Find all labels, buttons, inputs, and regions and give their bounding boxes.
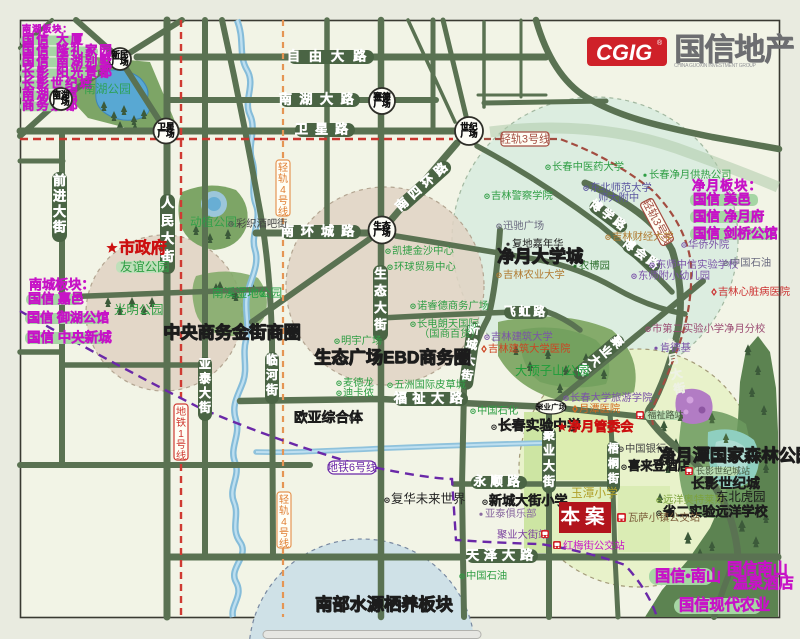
svg-text:东北虎园: 东北虎园 bbox=[716, 490, 766, 504]
svg-text:国信现代农业: 国信现代农业 bbox=[679, 596, 770, 614]
svg-text:临: 临 bbox=[266, 353, 278, 367]
svg-text:轨: 轨 bbox=[278, 172, 288, 185]
svg-text:4: 4 bbox=[281, 517, 287, 528]
svg-text:月: 月 bbox=[665, 352, 680, 367]
svg-text:卫星路: 卫星路 bbox=[295, 120, 355, 136]
svg-text:街: 街 bbox=[542, 475, 555, 489]
svg-text:国信 净月府: 国信 净月府 bbox=[693, 208, 765, 224]
svg-text:吉林财经大学: 吉林财经大学 bbox=[612, 230, 674, 243]
svg-text:广场: 广场 bbox=[460, 128, 478, 139]
svg-text:人: 人 bbox=[161, 195, 175, 210]
svg-text:师大附中: 师大附中 bbox=[598, 191, 639, 204]
svg-text:梧: 梧 bbox=[608, 441, 619, 455]
svg-text:大: 大 bbox=[374, 300, 387, 315]
svg-text:净月管委会: 净月管委会 bbox=[568, 418, 634, 434]
svg-text:CHINA GUOXIN INVESTMENT GROUP: CHINA GUOXIN INVESTMENT GROUP bbox=[674, 63, 757, 69]
svg-text:环球贸易中心: 环球贸易中心 bbox=[394, 260, 456, 273]
svg-text:吉林建筑大学: 吉林建筑大学 bbox=[491, 330, 553, 343]
svg-text:铁: 铁 bbox=[176, 416, 186, 429]
svg-text:业: 业 bbox=[543, 444, 555, 458]
svg-text:生: 生 bbox=[374, 266, 387, 281]
svg-text:广场: 广场 bbox=[111, 56, 129, 67]
svg-text:长春净月供热公司: 长春净月供热公司 bbox=[649, 168, 731, 181]
svg-text:五洲国际皮草城: 五洲国际皮草城 bbox=[394, 378, 466, 391]
svg-text:新城大街小学: 新城大街小学 bbox=[489, 492, 568, 508]
svg-text:号: 号 bbox=[176, 439, 186, 451]
svg-text:华侨外院: 华侨外院 bbox=[688, 238, 729, 251]
svg-text:大顶子山公园: 大顶子山公园 bbox=[515, 364, 589, 378]
svg-text:复华未来世界: 复华未来世界 bbox=[391, 491, 465, 506]
svg-text:南部水源栖养板块: 南部水源栖养板块 bbox=[316, 595, 454, 615]
svg-text:大: 大 bbox=[53, 203, 66, 219]
svg-text:广场: 广场 bbox=[157, 128, 175, 139]
svg-text:本案: 本案 bbox=[560, 505, 609, 528]
svg-text:街: 街 bbox=[198, 401, 211, 415]
svg-text:彩织酒吧街: 彩织酒吧街 bbox=[236, 217, 287, 230]
svg-text:市第二实验小学净月分校: 市第二实验小学净月分校 bbox=[652, 322, 765, 335]
svg-text:桐: 桐 bbox=[608, 456, 619, 470]
svg-text:国信 中央新城: 国信 中央新城 bbox=[27, 329, 112, 345]
svg-text:号: 号 bbox=[278, 195, 288, 207]
svg-text:月潭医院: 月潭医院 bbox=[579, 402, 620, 415]
svg-text:中国石油: 中国石油 bbox=[466, 569, 507, 582]
svg-text:国信 剑桥公馆: 国信 剑桥公馆 bbox=[693, 225, 778, 241]
svg-text:自由大路: 自由大路 bbox=[287, 47, 375, 63]
svg-text:凯捷金沙中心: 凯捷金沙中心 bbox=[392, 244, 454, 257]
svg-text:南环城路: 南环城路 bbox=[281, 222, 361, 238]
svg-text:国信 御湖公馆: 国信 御湖公馆 bbox=[27, 309, 109, 325]
svg-text:态: 态 bbox=[374, 283, 387, 298]
svg-text:线: 线 bbox=[278, 205, 288, 218]
svg-text:光明公园: 光明公园 bbox=[114, 303, 164, 317]
svg-text:吉林心脏病医院: 吉林心脏病医院 bbox=[718, 285, 790, 298]
svg-text:轻: 轻 bbox=[278, 161, 288, 174]
svg-text:友谊公园: 友谊公园 bbox=[120, 259, 170, 274]
svg-text:瓦萨小镇公交站: 瓦萨小镇公交站 bbox=[628, 511, 700, 524]
svg-text:长春大学旅游学院: 长春大学旅游学院 bbox=[570, 391, 652, 404]
svg-text:南湖大路: 南湖大路 bbox=[279, 90, 361, 106]
svg-text:玉潭小学: 玉潭小学 bbox=[571, 486, 618, 500]
svg-text:东师附小幼儿园: 东师附小幼儿园 bbox=[638, 269, 710, 282]
svg-text:净月潭国家森林公园: 净月潭国家森林公园 bbox=[659, 446, 800, 466]
svg-text:前: 前 bbox=[53, 172, 66, 188]
svg-text:大: 大 bbox=[199, 386, 211, 400]
svg-text:诺睿德商务广场: 诺睿德商务广场 bbox=[417, 299, 489, 312]
svg-text:线: 线 bbox=[279, 537, 289, 550]
svg-text:广场: 广场 bbox=[373, 227, 391, 238]
svg-text:天泽大路: 天泽大路 bbox=[466, 546, 538, 562]
svg-text:净月大学城: 净月大学城 bbox=[498, 247, 585, 267]
svg-text:河: 河 bbox=[266, 368, 278, 382]
svg-text:国信 美邑: 国信 美邑 bbox=[693, 191, 751, 207]
svg-text:1: 1 bbox=[178, 429, 184, 440]
svg-text:迪卡侬: 迪卡侬 bbox=[343, 386, 375, 399]
svg-text:福祉路站: 福祉路站 bbox=[648, 409, 684, 420]
svg-text:红梅街公交站: 红梅街公交站 bbox=[563, 539, 625, 552]
svg-text:明宇广场: 明宇广场 bbox=[341, 334, 382, 347]
svg-text:广场: 广场 bbox=[373, 98, 391, 109]
svg-text:轻: 轻 bbox=[279, 493, 289, 506]
svg-text:轻轨3号线: 轻轨3号线 bbox=[500, 132, 550, 146]
svg-text:街: 街 bbox=[52, 219, 66, 235]
svg-text:地: 地 bbox=[176, 405, 186, 418]
svg-text:民: 民 bbox=[161, 213, 174, 228]
svg-text:4: 4 bbox=[280, 185, 286, 196]
svg-text:吉林建筑大学医院: 吉林建筑大学医院 bbox=[488, 342, 570, 355]
svg-text:南城板块：: 南城板块： bbox=[29, 276, 94, 292]
svg-text:长春中医药大学: 长春中医药大学 bbox=[552, 160, 624, 173]
svg-text:中国石化: 中国石化 bbox=[477, 404, 518, 417]
svg-text:生态广场EBD商务圈: 生态广场EBD商务圈 bbox=[315, 348, 472, 368]
svg-text:广场: 广场 bbox=[52, 96, 70, 107]
svg-text:农博园: 农博园 bbox=[579, 259, 610, 272]
svg-text:聚业大街站: 聚业大街站 bbox=[497, 528, 548, 541]
svg-text:泰: 泰 bbox=[198, 372, 211, 386]
svg-text:进: 进 bbox=[53, 189, 67, 204]
svg-text:中央商务金街商圈: 中央商务金街商圈 bbox=[164, 323, 302, 343]
svg-text:温泉酒店: 温泉酒店 bbox=[733, 574, 794, 592]
svg-text:国信 嘉邑: 国信 嘉邑 bbox=[28, 290, 84, 306]
svg-text:迅驰广场: 迅驰广场 bbox=[503, 219, 544, 232]
svg-text:市政府: 市政府 bbox=[119, 238, 167, 257]
svg-text:大: 大 bbox=[543, 459, 555, 473]
svg-text:轨: 轨 bbox=[279, 504, 289, 517]
svg-text:南溪湿地公园: 南溪湿地公园 bbox=[212, 286, 282, 300]
svg-text:吉林农业大学: 吉林农业大学 bbox=[503, 268, 565, 281]
svg-text:街: 街 bbox=[373, 317, 387, 332]
svg-text:吉林警察学院: 吉林警察学院 bbox=[491, 189, 553, 202]
svg-text:中国石油: 中国石油 bbox=[730, 256, 771, 269]
svg-text:地铁6号线: 地铁6号线 bbox=[327, 460, 377, 474]
svg-text:街: 街 bbox=[607, 471, 619, 485]
svg-text:南湖公园: 南湖公园 bbox=[84, 82, 131, 96]
svg-text:长影世纪城站: 长影世纪城站 bbox=[696, 465, 750, 476]
svg-text:福祉大路: 福祉大路 bbox=[393, 389, 468, 405]
svg-text:聚业广场: 聚业广场 bbox=[535, 402, 567, 412]
svg-text:街: 街 bbox=[265, 383, 278, 397]
svg-text:肯德基: 肯德基 bbox=[660, 341, 691, 354]
svg-text:线: 线 bbox=[176, 449, 186, 462]
svg-text:永顺路: 永顺路 bbox=[473, 474, 525, 489]
svg-text:国信•南山: 国信•南山 bbox=[655, 567, 721, 585]
svg-text:CGIG: CGIG bbox=[596, 40, 652, 65]
svg-text:（国商百货）: （国商百货） bbox=[419, 327, 481, 340]
svg-text:®: ® bbox=[657, 39, 663, 47]
svg-text:号: 号 bbox=[279, 527, 289, 539]
svg-text:东师中信实验学校: 东师中信实验学校 bbox=[656, 258, 738, 271]
svg-text:长影世纪城: 长影世纪城 bbox=[691, 475, 760, 491]
svg-text:亚泰俱乐部: 亚泰俱乐部 bbox=[485, 507, 536, 520]
svg-text:亚: 亚 bbox=[199, 358, 211, 371]
svg-text:飞虹路: 飞虹路 bbox=[504, 304, 548, 318]
